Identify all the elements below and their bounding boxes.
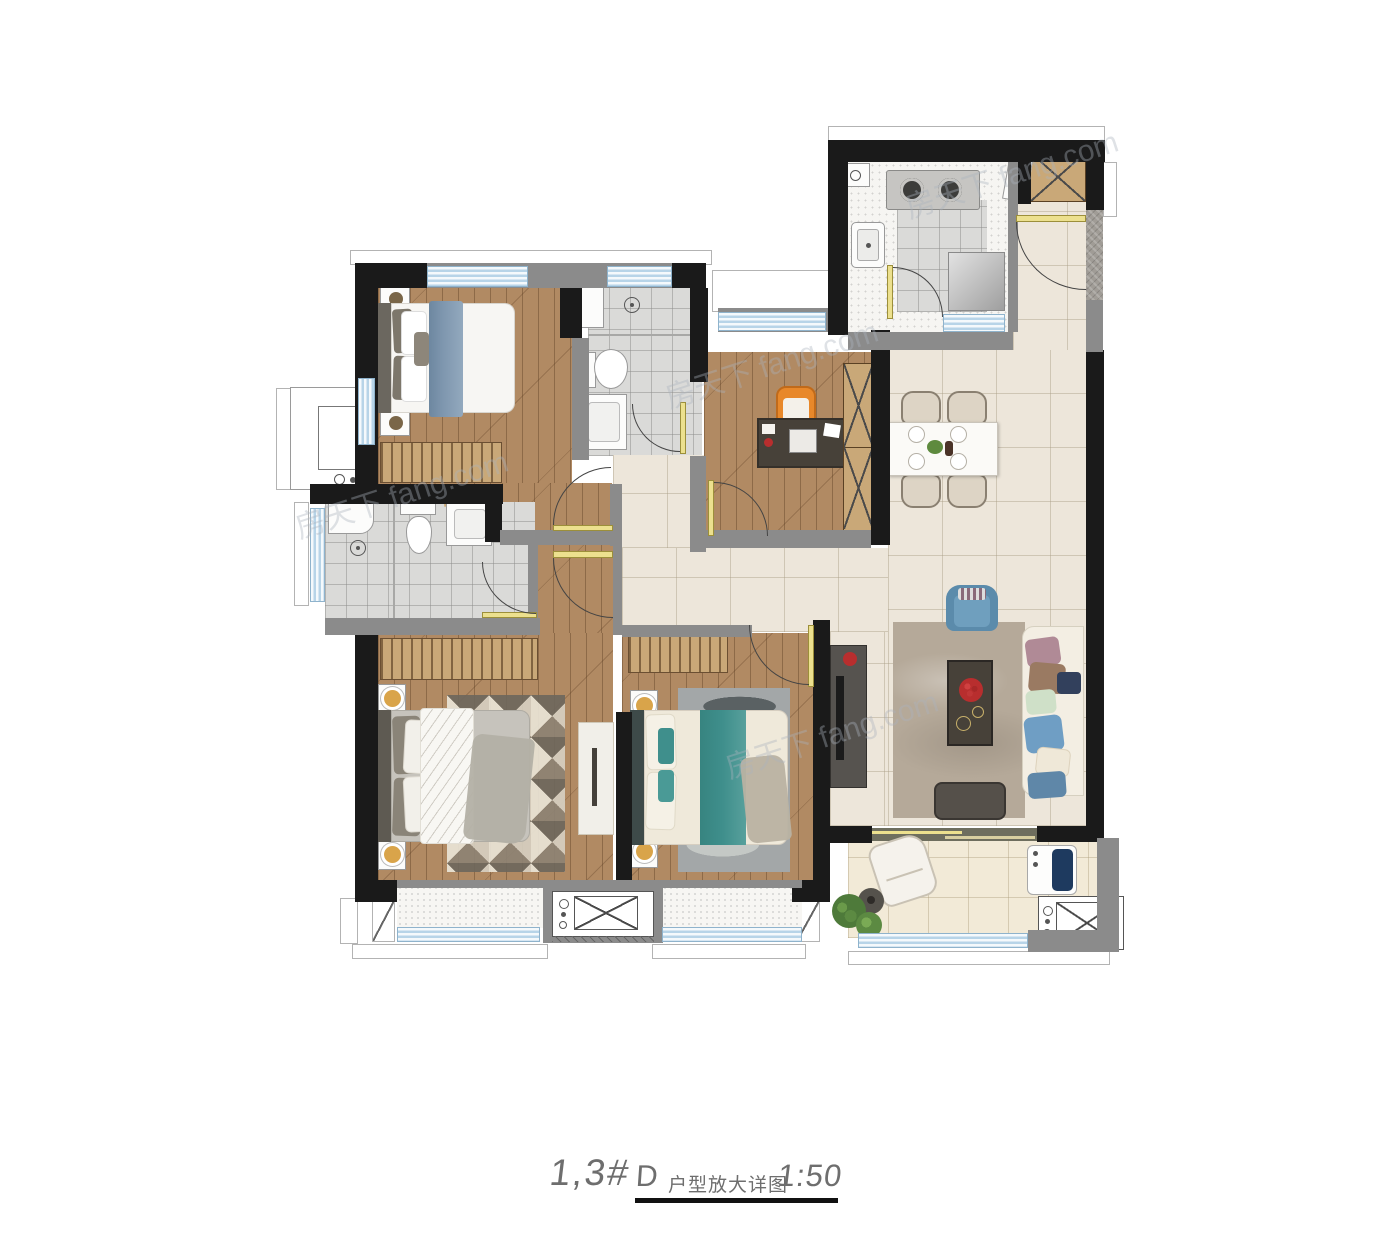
bed-blanket xyxy=(429,301,463,417)
hallway-floor xyxy=(622,548,888,632)
dining-table xyxy=(888,422,998,476)
plate-icon xyxy=(908,453,925,470)
shower-drain-icon xyxy=(624,297,640,313)
wall-segment xyxy=(355,263,378,485)
lamp-icon xyxy=(384,690,401,707)
wall-segment xyxy=(616,712,632,888)
dining-chair xyxy=(901,391,941,425)
wardrobe xyxy=(628,635,728,673)
coffee-table xyxy=(947,660,993,746)
entry-door-bar xyxy=(1016,215,1086,222)
wall-segment xyxy=(828,162,848,335)
wall-segment xyxy=(1086,210,1103,302)
title-underline xyxy=(635,1198,838,1203)
pipe-icon xyxy=(1043,906,1053,916)
dining-chair xyxy=(947,474,987,508)
window-sill-outline xyxy=(848,951,1110,965)
wall-segment xyxy=(613,543,622,635)
bay-window xyxy=(397,927,540,942)
accent-pillow xyxy=(658,728,674,764)
flowers-icon xyxy=(843,652,857,666)
paper-icon xyxy=(823,423,841,438)
lamp-icon xyxy=(384,846,401,863)
dining-chair xyxy=(901,474,941,508)
wall-segment xyxy=(500,530,612,545)
wall-segment xyxy=(355,880,397,902)
ottoman xyxy=(934,782,1006,820)
drawing-scale: 1:50 xyxy=(776,1158,845,1194)
floor-plan: 房天下 fang.com 房天下 fang.com 房天下 fang.com 房… xyxy=(0,0,1400,1251)
wall-segment xyxy=(1028,930,1100,952)
plate-icon xyxy=(950,453,967,470)
platform-hatch xyxy=(552,936,654,942)
sofa-pillow xyxy=(1057,672,1081,694)
wine-bottle-icon xyxy=(945,441,953,456)
dresser-handle xyxy=(592,748,597,806)
throw-blanket xyxy=(463,733,536,845)
tray-icon xyxy=(956,716,971,731)
window xyxy=(943,314,1005,332)
window xyxy=(427,266,528,287)
drawing-name: 户型放大详图 xyxy=(668,1170,788,1197)
armchair-pillow xyxy=(958,588,986,600)
window xyxy=(607,266,672,287)
lamp-icon xyxy=(636,843,653,860)
study-cabinet xyxy=(843,363,874,531)
window-sill-outline xyxy=(652,944,806,959)
building-number: 1,3# xyxy=(547,1152,632,1194)
dining-chair xyxy=(947,391,987,425)
table-plant-icon xyxy=(927,440,943,454)
laptop-icon xyxy=(789,429,817,453)
refrigerator xyxy=(948,252,1005,311)
nightstand xyxy=(380,410,410,436)
window-sill-outline xyxy=(276,388,291,490)
window-sill-outline xyxy=(340,898,358,944)
cup-icon xyxy=(764,438,773,447)
kitchen-sink xyxy=(851,222,885,268)
plant-icon xyxy=(389,416,403,430)
roses-icon xyxy=(959,678,983,702)
wall-segment xyxy=(572,338,589,460)
shower-divider xyxy=(393,502,395,620)
pipe-icon xyxy=(559,899,569,909)
balcony-window xyxy=(858,933,1028,948)
bed-headboard xyxy=(630,710,644,845)
door-leaf xyxy=(553,551,613,558)
shower-divider xyxy=(588,334,702,336)
bed-headboard xyxy=(378,710,391,842)
window-sill-outline xyxy=(1103,162,1117,217)
book-icon xyxy=(762,424,775,434)
washer-drum xyxy=(1052,849,1073,891)
bay-window-sill xyxy=(662,885,802,928)
window xyxy=(358,378,375,445)
wall-segment xyxy=(1086,300,1103,352)
sofa-pillow xyxy=(1027,771,1067,800)
wall-segment xyxy=(355,627,378,888)
sofa-pillow xyxy=(1025,689,1057,716)
pipe-icon xyxy=(1045,919,1050,924)
wall-segment xyxy=(1086,350,1104,840)
wardrobe xyxy=(380,638,538,680)
window-sill-outline xyxy=(712,270,830,312)
title-block: 1,3# D 户型放大详图 1:50 xyxy=(540,1150,880,1212)
wall-segment xyxy=(672,263,706,288)
wall-segment xyxy=(397,880,802,888)
bay-window-sill xyxy=(397,885,543,928)
plate-icon xyxy=(908,426,925,443)
plate-icon xyxy=(950,426,967,443)
wall-segment xyxy=(871,330,890,545)
wall-segment xyxy=(830,826,872,843)
window-sill-outline xyxy=(352,944,548,959)
bay-side-panel xyxy=(372,900,395,942)
ac-outdoor-unit xyxy=(318,406,358,470)
wall-segment xyxy=(622,625,752,637)
pipe-icon xyxy=(559,921,567,929)
wall-segment xyxy=(1097,838,1119,952)
ac-outdoor-unit xyxy=(574,896,638,930)
pipe-icon xyxy=(561,912,566,917)
bay-window xyxy=(662,927,802,942)
door-leaf xyxy=(553,525,613,531)
accent-pillow xyxy=(414,332,429,366)
wall-segment xyxy=(325,618,540,635)
sliding-door-track xyxy=(848,828,1040,841)
shower-drain-icon xyxy=(350,540,366,556)
drawing-code: D xyxy=(635,1160,659,1194)
tray-icon xyxy=(972,706,984,718)
washer-knob xyxy=(1033,851,1038,856)
accent-pillow xyxy=(658,770,674,802)
bed-headboard xyxy=(378,303,391,413)
washer-knob xyxy=(1033,862,1038,867)
sliding-door-leaf xyxy=(945,836,1035,839)
